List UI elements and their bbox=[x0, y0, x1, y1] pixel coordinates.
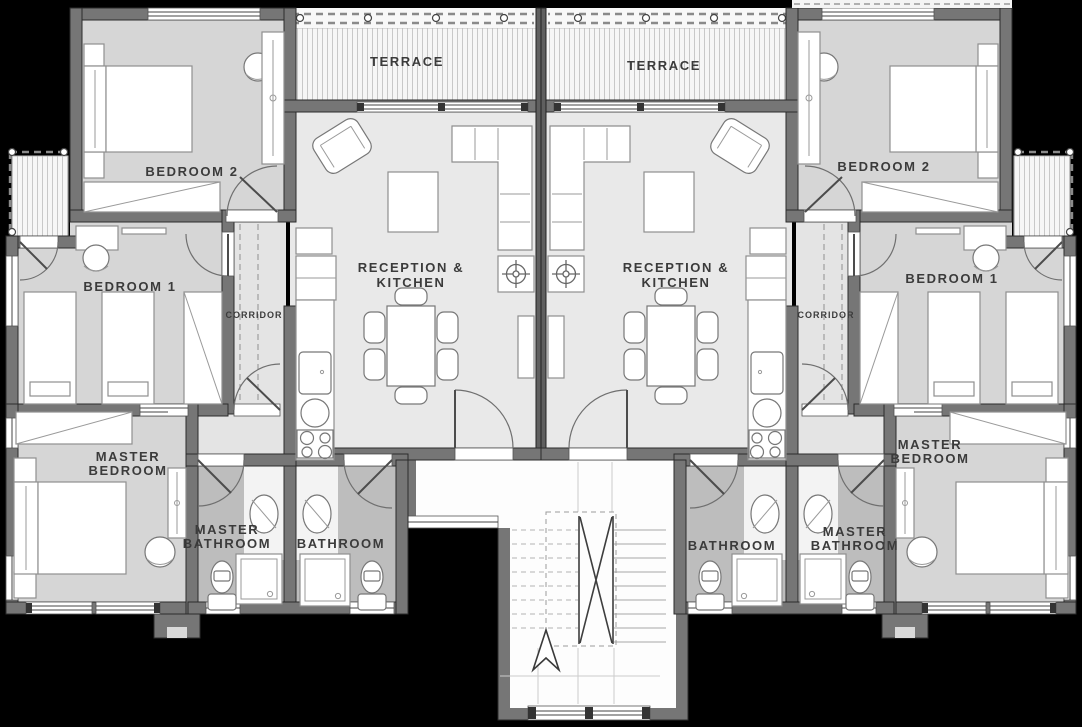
room-label-master-bed-1: MASTER bbox=[898, 437, 963, 452]
room-label-terrace: TERRACE bbox=[370, 54, 444, 69]
room-label-master-bath-1: MASTER bbox=[195, 522, 260, 537]
room-label-master-bath-1: MASTER bbox=[823, 524, 888, 539]
room-label-bedroom1: BEDROOM 1 bbox=[83, 279, 176, 294]
floor-plan-canvas: TERRACE BEDROOM 2 BEDROOM 1 CORRIDOR REC… bbox=[0, 0, 1082, 727]
room-label-terrace: TERRACE bbox=[627, 58, 701, 73]
right-terrace-band bbox=[792, 0, 1012, 8]
room-label-bedroom2: BEDROOM 2 bbox=[837, 159, 930, 174]
room-label-reception-2: KITCHEN bbox=[642, 275, 711, 290]
room-label-bedroom2: BEDROOM 2 bbox=[145, 164, 238, 179]
floor-plan-drawing: TERRACE BEDROOM 2 BEDROOM 1 CORRIDOR REC… bbox=[0, 0, 1082, 727]
room-label-master-bed-2: BEDROOM bbox=[88, 463, 167, 478]
room-label-master-bed-1: MASTER bbox=[96, 449, 161, 464]
room-label-reception-1: RECEPTION & bbox=[623, 260, 729, 275]
room-label-bedroom1: BEDROOM 1 bbox=[905, 271, 998, 286]
room-label-corridor: CORRIDOR bbox=[798, 310, 855, 320]
room-label-master-bed-2: BEDROOM bbox=[890, 451, 969, 466]
room-label-bathroom: BATHROOM bbox=[688, 538, 776, 553]
room-label-reception-1: RECEPTION & bbox=[358, 260, 464, 275]
room-label-reception-2: KITCHEN bbox=[377, 275, 446, 290]
room-label-master-bath-2: BATHROOM bbox=[183, 536, 271, 551]
room-label-corridor: CORRIDOR bbox=[226, 310, 283, 320]
room-label-master-bath-2: BATHROOM bbox=[811, 538, 899, 553]
room-label-bathroom: BATHROOM bbox=[297, 536, 385, 551]
